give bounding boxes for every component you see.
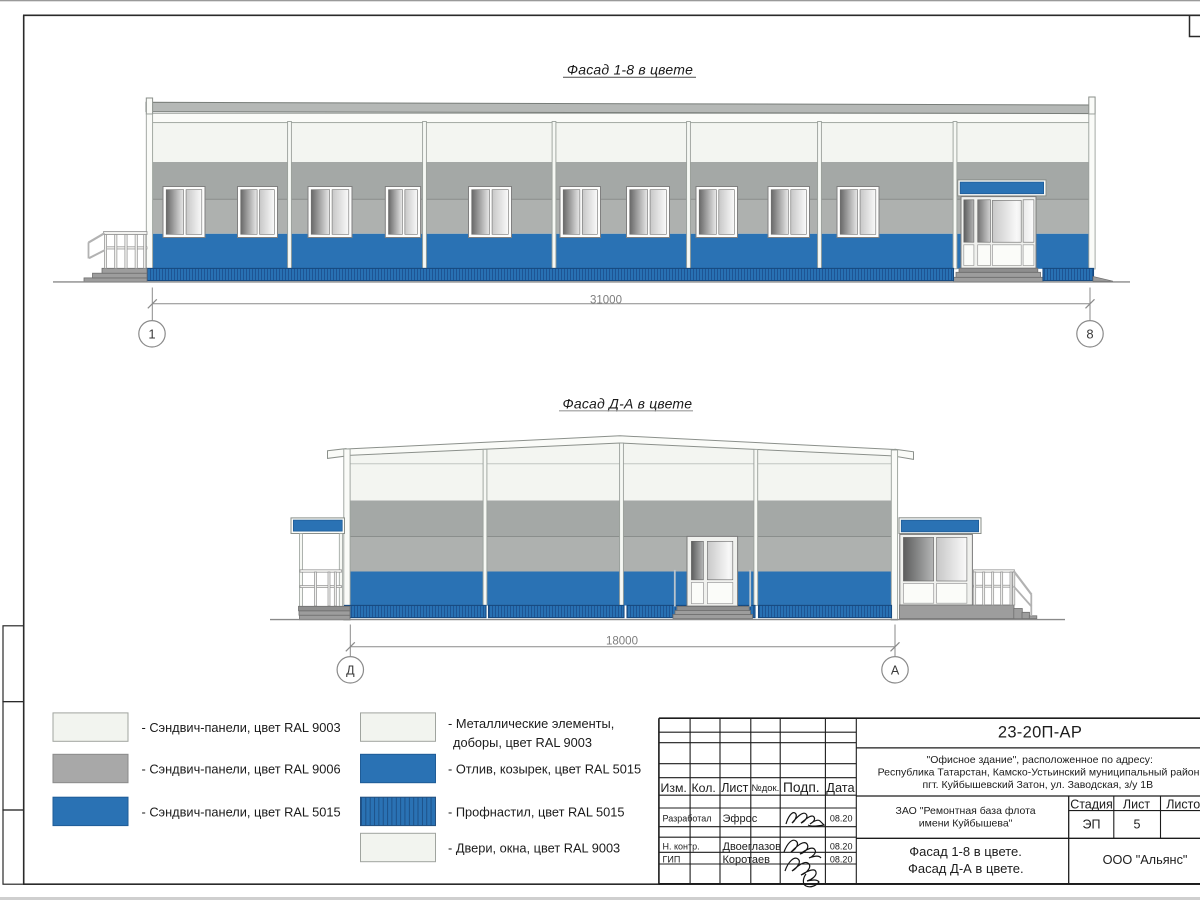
svg-text:Эфрос: Эфрос <box>723 813 758 825</box>
svg-text:Д: Д <box>346 663 355 677</box>
svg-text:Лист: Лист <box>721 781 748 795</box>
svg-text:- Профнастил, цвет RAL 5015: - Профнастил, цвет RAL 5015 <box>448 804 624 819</box>
svg-text:Разработал: Разработал <box>663 813 712 823</box>
svg-text:08.20: 08.20 <box>830 841 853 851</box>
svg-text:Стадия: Стадия <box>1070 798 1113 812</box>
svg-text:- Сэндвич-панели, цвет RAL 501: - Сэндвич-панели, цвет RAL 5015 <box>142 804 341 819</box>
svg-text:Фасад 1-8 в цвете: Фасад 1-8 в цвете <box>567 62 693 78</box>
svg-text:Кол.: Кол. <box>692 781 716 795</box>
svg-text:Двоеглазов: Двоеглазов <box>723 841 782 853</box>
svg-text:Дата: Дата <box>826 780 855 795</box>
svg-text:Подп.: Подп. <box>783 780 820 795</box>
svg-text:08.20: 08.20 <box>830 855 853 865</box>
svg-text:ЗАО "Ремонтная база флота: ЗАО "Ремонтная база флота <box>896 805 1036 817</box>
svg-text:Н. контр.: Н. контр. <box>663 841 700 851</box>
svg-text:ЭП: ЭП <box>1083 818 1101 832</box>
svg-text:23-20П-АР: 23-20П-АР <box>998 724 1082 742</box>
svg-text:31000: 31000 <box>590 294 622 306</box>
svg-text:Изм.: Изм. <box>661 781 687 795</box>
svg-text:ООО "Альянс": ООО "Альянс" <box>1103 853 1188 867</box>
svg-text:Фасад Д-А в цвете.: Фасад Д-А в цвете. <box>908 861 1024 876</box>
svg-text:18000: 18000 <box>606 635 638 647</box>
svg-text:№док.: №док. <box>752 783 780 794</box>
svg-text:08.20: 08.20 <box>830 813 853 823</box>
svg-text:5: 5 <box>1134 818 1141 832</box>
svg-text:- Металлические элементы,: - Металлические элементы, <box>448 716 614 731</box>
svg-text:А: А <box>891 663 900 677</box>
svg-text:- Сэндвич-панели, цвет RAL 900: - Сэндвич-панели, цвет RAL 9003 <box>142 720 341 735</box>
svg-text:пгт. Куйбышевский Затон, ул. З: пгт. Куйбышевский Затон, ул. Заводская, … <box>922 779 1153 791</box>
svg-text:Коротаев: Коротаев <box>723 854 771 866</box>
svg-text:Фасад 1-8 в цвете.: Фасад 1-8 в цвете. <box>909 844 1022 859</box>
svg-text:ГИП: ГИП <box>663 855 681 865</box>
svg-text:- Двери, окна, цвет RAL 9003: - Двери, окна, цвет RAL 9003 <box>448 841 620 856</box>
svg-text:8: 8 <box>1086 326 1093 341</box>
svg-text:- Сэндвич-панели, цвет RAL 900: - Сэндвич-панели, цвет RAL 9006 <box>142 762 341 777</box>
svg-text:Республика Татарстан, Камско-У: Республика Татарстан, Камско-Устьинский … <box>878 766 1200 778</box>
svg-text:1: 1 <box>148 326 155 341</box>
svg-text:- Отлив, козырек, цвет RAL 501: - Отлив, козырек, цвет RAL 5015 <box>448 762 641 777</box>
svg-text:"Офисное здание", расположенно: "Офисное здание", расположенное по адрес… <box>926 754 1152 766</box>
svg-text:доборы, цвет RAL 9003: доборы, цвет RAL 9003 <box>453 735 592 750</box>
svg-text:имени Куйбышева": имени Куйбышева" <box>919 818 1013 830</box>
svg-text:Листов: Листов <box>1166 798 1200 812</box>
svg-text:Фасад Д-А в цвете: Фасад Д-А в цвете <box>563 395 693 411</box>
svg-text:Лист: Лист <box>1123 798 1150 812</box>
